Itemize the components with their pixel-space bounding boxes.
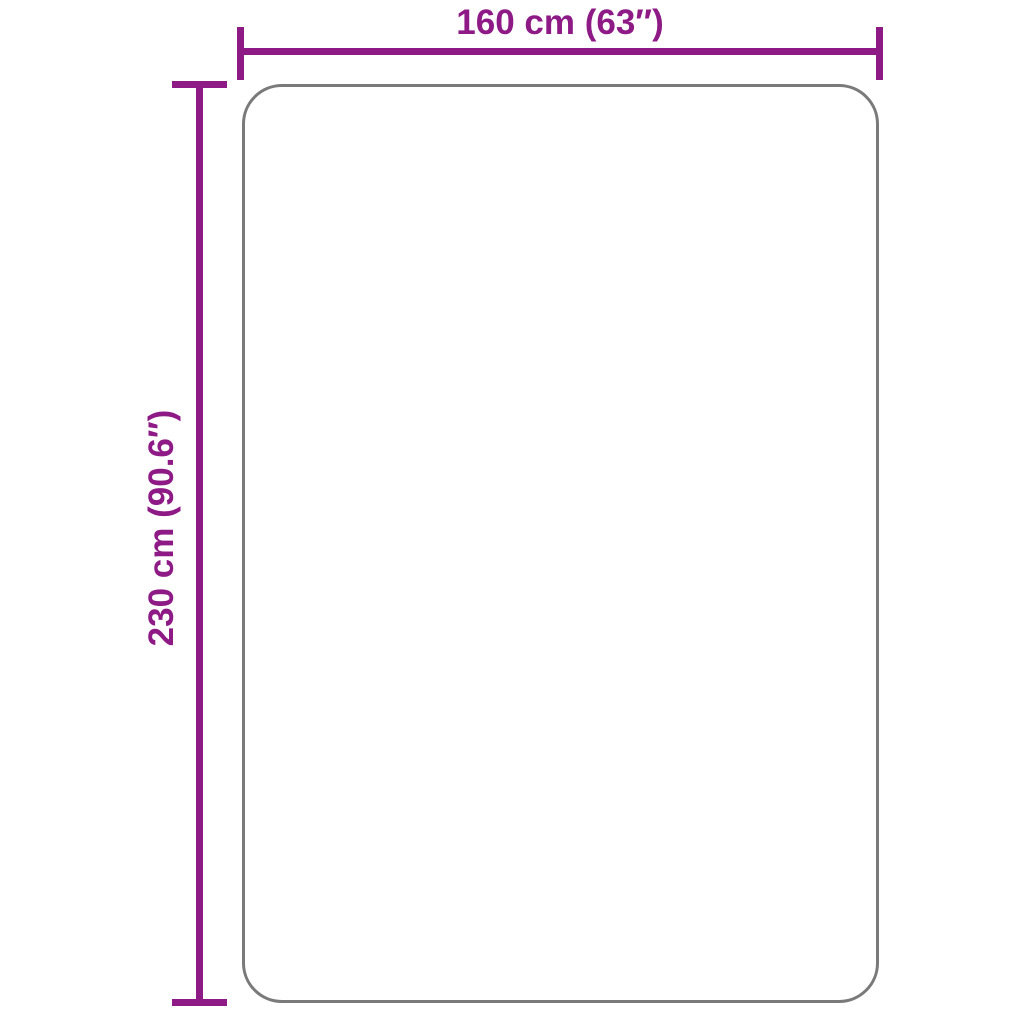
height-dimension-bottom-cap xyxy=(172,999,227,1006)
height-dimension-label: 230 cm (90.6″) xyxy=(140,278,184,778)
height-dimension-top-cap xyxy=(172,81,227,88)
width-dimension-line xyxy=(240,48,880,55)
rug-outline xyxy=(242,84,879,1003)
width-dimension-label: 160 cm (63″) xyxy=(240,3,880,43)
height-dimension-line xyxy=(196,84,203,1003)
dimension-diagram: 160 cm (63″) 230 cm (90.6″) xyxy=(0,0,1024,1024)
